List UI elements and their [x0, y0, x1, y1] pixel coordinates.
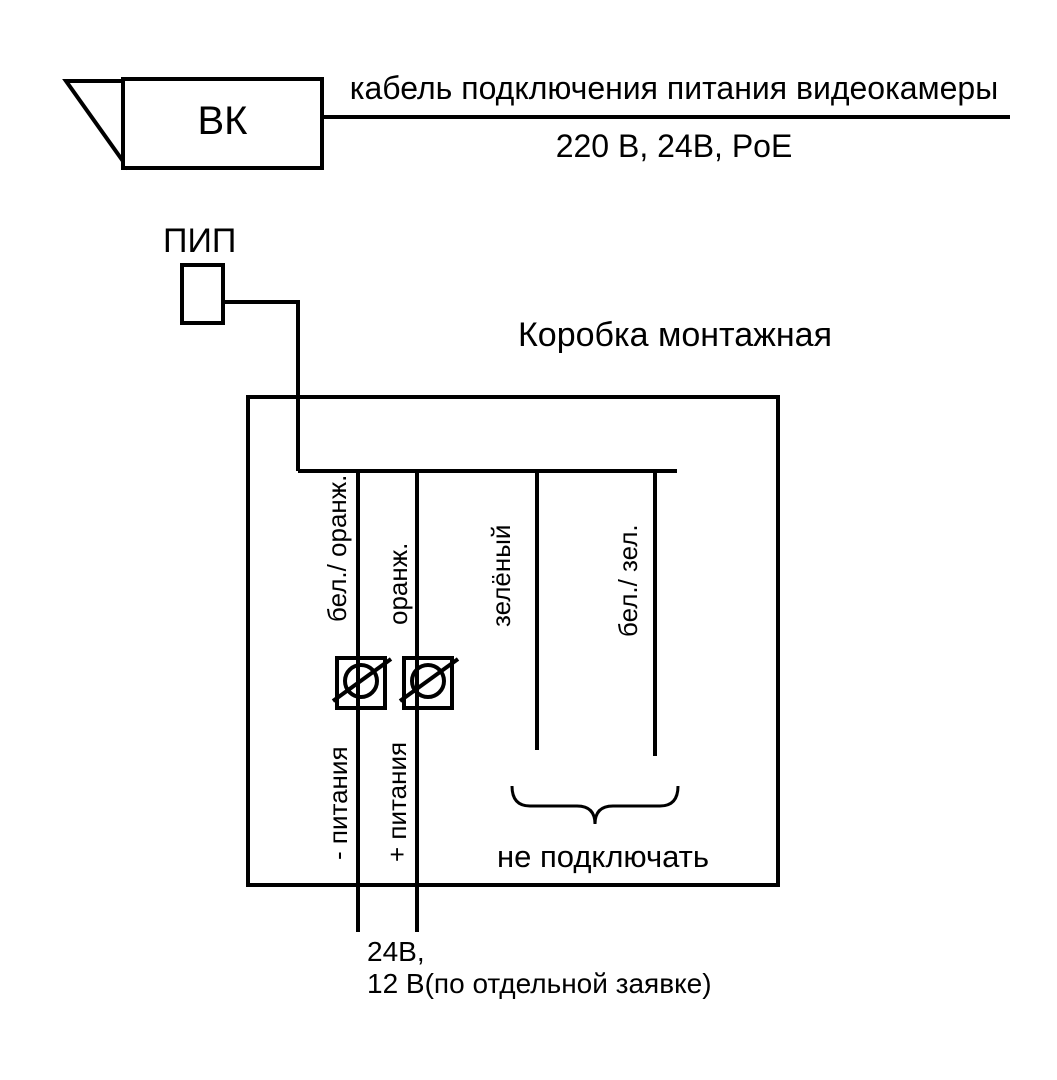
junction-box-title: Коробка монтажная [450, 316, 900, 354]
do-not-connect-label: не подключать [497, 840, 709, 874]
camera-label: ВК [123, 99, 322, 143]
cable-voltages-label: 220 В, 24В, PoE [330, 129, 1018, 163]
terminal-1-symbol [333, 658, 391, 708]
wire-1-function-label: - питания [323, 746, 353, 860]
power-note-line-2: 12 В(по отдельной заявке) [367, 968, 712, 1000]
wire-2-color-label: оранж. [383, 543, 413, 625]
wiring-diagram: ВК кабель подключения питания видеокамер… [0, 0, 1057, 1080]
do-not-connect-brace [512, 786, 678, 824]
terminal-2-symbol [400, 658, 458, 708]
camera-lens-triangle [66, 81, 125, 164]
wire-4-color-label: бел./ зел. [613, 524, 643, 637]
wire-1-color-label: бел./ оранж. [322, 475, 352, 622]
cable-label: кабель подключения питания видеокамеры [330, 70, 1018, 106]
wire-3-color-label: зелёный [486, 525, 516, 627]
power-note: 24В, 12 В(по отдельной заявке) [367, 936, 712, 1000]
pip-label: ПИП [163, 224, 236, 258]
power-note-line-1: 24В, [367, 936, 712, 968]
pip-box-rect [182, 265, 223, 323]
wire-2-function-label: + питания [382, 742, 412, 862]
pip-wire [223, 302, 298, 471]
